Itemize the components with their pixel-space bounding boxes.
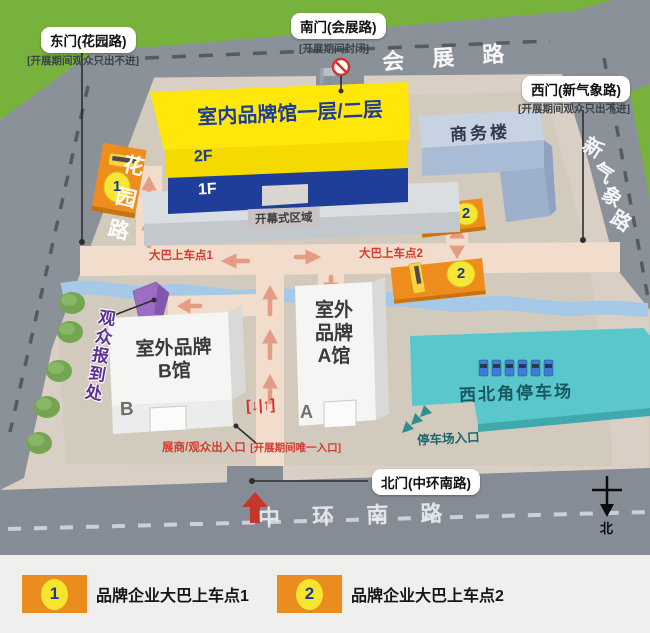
bus-stop1-label: 大巴上车点1 bbox=[149, 247, 213, 263]
business-building-label: 商务楼 bbox=[449, 117, 510, 145]
hall-b-label: 室外品牌B馆 bbox=[117, 335, 231, 385]
hall-a-letter: A bbox=[300, 402, 313, 423]
in-out-gate-sign: [↓|↑] bbox=[246, 396, 276, 415]
hall-a-line1: 室外 bbox=[303, 299, 365, 322]
north-gate-stub bbox=[227, 466, 283, 492]
roof-antenna bbox=[320, 68, 324, 84]
hall-a-door bbox=[324, 400, 356, 428]
legend-label-1: 品牌企业大巴上车点1 bbox=[96, 582, 249, 606]
legend-swatch-1: 1 bbox=[22, 575, 87, 613]
business-building-wing bbox=[500, 168, 550, 222]
legend-label-2: 品牌企业大巴上车点2 bbox=[351, 582, 504, 606]
gate-note-east: [开展期间观众只出不进] bbox=[27, 53, 139, 68]
hall-b-door bbox=[150, 406, 186, 432]
legend-swatch-2: 2 bbox=[277, 575, 342, 613]
opening-ceremony-plaque: 开幕式区域 bbox=[248, 207, 320, 229]
exit-text: 展商/观众出入口 bbox=[162, 442, 246, 454]
bus-stop2-label: 大巴上车点2 bbox=[359, 245, 423, 261]
floor-1f-label: 1F bbox=[198, 181, 218, 200]
legend-item-1: 1 品牌企业大巴上车点1 bbox=[22, 575, 249, 613]
gate-note-west: [开展期间观众只出不进] bbox=[518, 101, 630, 116]
parking-entrance-label: 停车场入口 bbox=[417, 426, 480, 448]
map-marker-2a: 2 bbox=[458, 205, 474, 222]
hall-a-line2: 品牌 bbox=[303, 322, 365, 345]
parking-lot-label: 西北角停车场 bbox=[459, 377, 574, 406]
map-marker-2b: 2 bbox=[453, 265, 469, 282]
indoor-hall-entrance bbox=[262, 184, 308, 206]
no-entry-icon bbox=[333, 59, 349, 75]
hall-b-letter: B bbox=[120, 399, 134, 421]
legend-marker-1: 1 bbox=[41, 579, 68, 610]
venue-map: 会 展 路 花园路 新 气 象 路 中 环 南 路 东门(花园路) [开展期间观… bbox=[0, 0, 650, 633]
gate-note-south: [开展期间封闭] bbox=[299, 41, 369, 56]
gate-label-north: 北门(中环南路) bbox=[372, 469, 480, 495]
hall-b-line2: B馆 bbox=[118, 358, 231, 385]
exit-note-text: [开展期间唯一入口] bbox=[250, 442, 341, 454]
compass-north-label: 北 bbox=[600, 518, 613, 537]
legend-marker-2: 2 bbox=[296, 579, 323, 610]
gate-label-west: 西门(新气象路) bbox=[522, 76, 630, 102]
map-marker-1: 1 bbox=[109, 178, 125, 195]
gate-label-south: 南门(会展路) bbox=[291, 13, 386, 39]
floor-2f-label: 2F bbox=[194, 148, 214, 167]
gate-label-east: 东门(花园路) bbox=[41, 27, 136, 53]
road-label-zhonghuan: 中 环 南 路 bbox=[258, 495, 456, 532]
legend: 1 品牌企业大巴上车点1 2 品牌企业大巴上车点2 bbox=[0, 555, 650, 633]
hall-a-label: 室外品牌A馆 bbox=[303, 299, 365, 368]
exhibitor-exit-label: 展商/观众出入口 [开展期间唯一入口] bbox=[162, 438, 341, 456]
hall-a-line3: A馆 bbox=[303, 345, 365, 368]
legend-item-2: 2 品牌企业大巴上车点2 bbox=[277, 575, 504, 613]
